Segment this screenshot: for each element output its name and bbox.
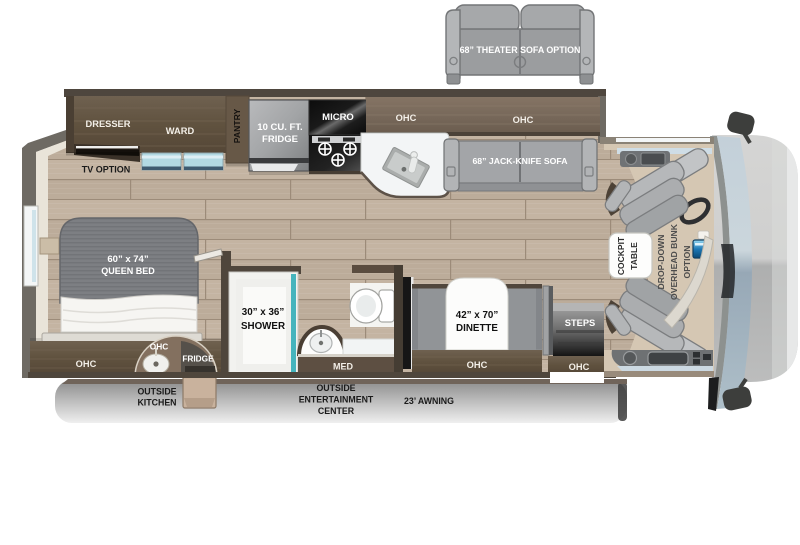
svg-text:DINETTE: DINETTE bbox=[456, 323, 498, 334]
svg-text:ENTERTAINMENT: ENTERTAINMENT bbox=[299, 395, 374, 405]
svg-text:KITCHEN: KITCHEN bbox=[137, 398, 176, 408]
svg-text:30” x 36”: 30” x 36” bbox=[242, 307, 285, 318]
svg-text:OHC: OHC bbox=[76, 359, 97, 369]
svg-text:60” x 74”: 60” x 74” bbox=[107, 254, 148, 265]
svg-text:OUTSIDE: OUTSIDE bbox=[316, 383, 355, 393]
svg-text:OPTION: OPTION bbox=[682, 246, 692, 279]
svg-text:MED: MED bbox=[333, 362, 354, 372]
svg-text:TV OPTION: TV OPTION bbox=[82, 165, 131, 175]
svg-text:23’ AWNING: 23’ AWNING bbox=[404, 396, 454, 406]
svg-text:OHC: OHC bbox=[569, 362, 590, 372]
svg-text:OUTSIDE: OUTSIDE bbox=[137, 387, 176, 397]
svg-text:OHC: OHC bbox=[396, 113, 417, 123]
svg-text:FRIDGE: FRIDGE bbox=[182, 354, 214, 364]
svg-text:DROP-DOWN: DROP-DOWN bbox=[656, 235, 666, 290]
svg-text:10 CU. FT.: 10 CU. FT. bbox=[257, 122, 302, 133]
svg-text:COCKPIT: COCKPIT bbox=[616, 236, 626, 275]
svg-text:SHOWER: SHOWER bbox=[241, 321, 285, 332]
svg-text:OHC: OHC bbox=[467, 360, 488, 370]
svg-text:OHC: OHC bbox=[150, 342, 168, 352]
svg-text:CENTER: CENTER bbox=[318, 406, 355, 416]
svg-text:OHC: OHC bbox=[513, 115, 534, 125]
svg-text:QUEEN BED: QUEEN BED bbox=[101, 266, 155, 276]
svg-text:WARD: WARD bbox=[166, 126, 195, 136]
svg-text:68” THEATER SOFA OPTION: 68” THEATER SOFA OPTION bbox=[460, 45, 581, 55]
svg-text:42” x 70”: 42” x 70” bbox=[456, 310, 499, 321]
svg-text:FRIDGE: FRIDGE bbox=[262, 134, 298, 145]
svg-text:TABLE: TABLE bbox=[629, 242, 639, 270]
svg-text:PANTRY: PANTRY bbox=[232, 109, 242, 144]
svg-text:DRESSER: DRESSER bbox=[86, 119, 131, 129]
svg-text:OVERHEAD BUNK: OVERHEAD BUNK bbox=[669, 223, 679, 300]
svg-text:STEPS: STEPS bbox=[565, 318, 595, 328]
svg-text:68” JACK-KNIFE SOFA: 68” JACK-KNIFE SOFA bbox=[472, 156, 568, 166]
svg-text:MICRO: MICRO bbox=[322, 112, 354, 123]
